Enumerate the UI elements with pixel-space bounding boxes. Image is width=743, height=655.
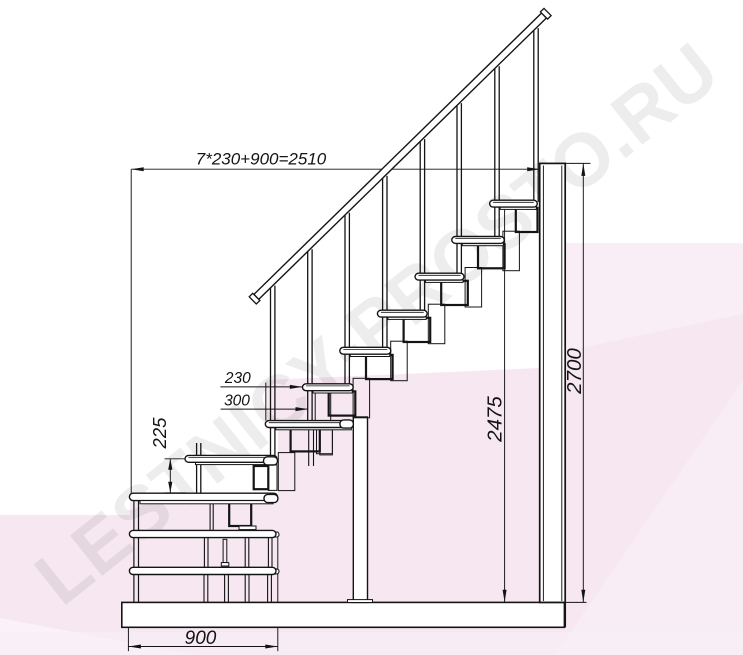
- svg-text:2700: 2700: [563, 348, 586, 395]
- svg-text:2475: 2475: [483, 396, 506, 443]
- svg-text:225: 225: [149, 417, 170, 450]
- svg-text:300: 300: [224, 392, 250, 409]
- svg-text:900: 900: [185, 628, 217, 649]
- svg-text:7*230+900=2510: 7*230+900=2510: [196, 150, 327, 169]
- svg-text:230: 230: [224, 370, 251, 387]
